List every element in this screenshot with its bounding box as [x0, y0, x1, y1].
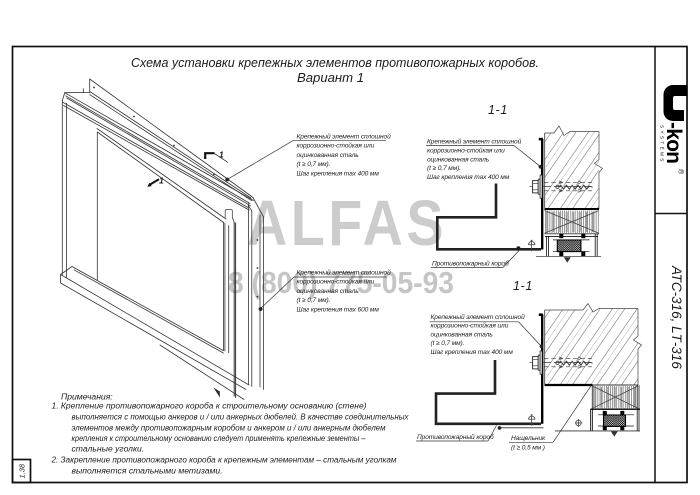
svg-text:Противопожарный короб: Противопожарный короб: [417, 433, 494, 441]
svg-text:ALFAS: ALFAS: [247, 187, 447, 259]
svg-text:SYSTEMS: SYSTEMS: [660, 125, 665, 164]
svg-text:(t ≥ 0,5 мм ): (t ≥ 0,5 мм ): [511, 445, 545, 452]
svg-text:(t ≥ 0,7 мм).: (t ≥ 0,7 мм).: [431, 340, 465, 347]
svg-text:Крепежный элемент сплошной: Крепежный элемент сплошной: [431, 313, 526, 321]
svg-text:Крепежный элемент сплошной: Крепежный элемент сплошной: [297, 269, 392, 277]
svg-text:1. Крепление противопожарног: 1. Крепление противопожарного короба к с…: [52, 401, 367, 411]
svg-text:Шаг крепления max 400 мм: Шаг крепления max 400 мм: [427, 174, 510, 181]
svg-text:оцинкованная сталь: оцинкованная сталь: [427, 156, 490, 163]
svg-text:стальные уголки.: стальные уголки.: [72, 444, 145, 454]
svg-text:®: ®: [677, 169, 685, 175]
svg-text:оцинкованная сталь: оцинкованная сталь: [431, 331, 494, 338]
svg-text:Нащельник: Нащельник: [511, 435, 546, 442]
svg-text:(t ≥ 0,7 мм).: (t ≥ 0,7 мм).: [297, 297, 331, 304]
svg-text:выполняется с помощью анкеров: выполняется с помощью анкеров и / или ан…: [72, 412, 410, 422]
svg-text:Шаг крепления max 600 мм: Шаг крепления max 600 мм: [297, 306, 380, 313]
svg-text:1.38: 1.38: [18, 463, 27, 478]
svg-text:коррозионно-стойкая или: коррозионно-стойкая или: [431, 322, 509, 330]
svg-text:Противопожарный короб: Противопожарный короб: [432, 260, 509, 268]
svg-text:выполняется стальными метизам: выполняется стальными метизами.: [72, 466, 223, 476]
svg-text:крепления к строительному осно: крепления к строительному основанию след…: [72, 433, 366, 443]
svg-text:АТС-316, LТ-316: АТС-316, LТ-316: [669, 265, 684, 369]
svg-text:коррозионно-стойкая или: коррозионно-стойкая или: [297, 278, 375, 286]
svg-text:оцинкованная сталь: оцинкованная сталь: [297, 288, 360, 295]
svg-text:оцинкованная сталь: оцинкованная сталь: [297, 152, 360, 159]
svg-text:Крепежный элемент сплошной: Крепежный элемент сплошной: [297, 133, 392, 141]
svg-text:(t ≥ 0,7 мм).: (t ≥ 0,7 мм).: [297, 161, 331, 168]
svg-text:Вариант 1: Вариант 1: [297, 70, 364, 85]
svg-text:элементов между противопожарны: элементов между противопожарным коробом …: [72, 423, 386, 433]
svg-text:Схема установки крепежных элем: Схема установки крепежных элементов прот…: [131, 55, 539, 70]
svg-text:Шаг крепления max 400 мм: Шаг крепления max 400 мм: [297, 170, 380, 177]
svg-text:коррозионно-стойкая или: коррозионно-стойкая или: [427, 147, 505, 155]
svg-text:1-1: 1-1: [488, 103, 508, 117]
svg-text:1: 1: [219, 150, 224, 160]
svg-text:1: 1: [159, 176, 164, 186]
svg-text:коррозионно-стойкая или: коррозионно-стойкая или: [297, 142, 375, 150]
svg-text:(t ≥ 0,7 мм).: (t ≥ 0,7 мм).: [427, 165, 461, 172]
svg-text:1-1: 1-1: [513, 279, 533, 293]
svg-text:2. Закрепление противопожарно: 2. Закрепление противопожарного короба к…: [51, 455, 397, 465]
svg-text:Крепежный элемент сплошной: Крепежный элемент сплошной: [427, 138, 522, 146]
svg-text:Шаг крепления max 400 мм: Шаг крепления max 400 мм: [431, 349, 514, 356]
